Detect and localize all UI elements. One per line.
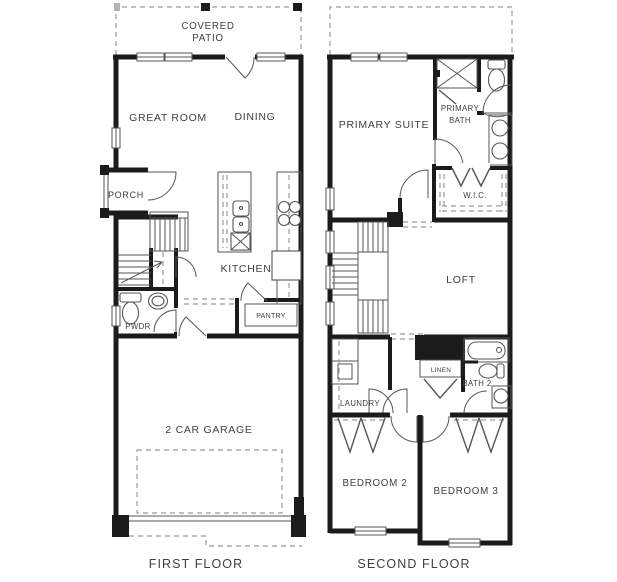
shower-door bbox=[439, 90, 456, 104]
covered-patio-label-line2: PATIO bbox=[192, 33, 223, 44]
bedroom-2: BEDROOM 2 bbox=[334, 418, 408, 489]
window bbox=[326, 188, 334, 210]
window bbox=[449, 539, 480, 547]
window bbox=[165, 53, 192, 61]
closet-door-chevron bbox=[338, 418, 361, 452]
bedroom3-label: BEDROOM 3 bbox=[433, 486, 498, 497]
window bbox=[351, 53, 378, 61]
closet-door-chevron bbox=[361, 418, 385, 452]
window bbox=[257, 53, 285, 61]
loft-label: LOFT bbox=[446, 274, 476, 286]
primary-suite-label: PRIMARY SUITE bbox=[339, 119, 429, 131]
shower-icon bbox=[435, 59, 477, 104]
washer-dryer-icon bbox=[332, 339, 358, 384]
bath2-label: BATH 2 bbox=[462, 379, 491, 388]
linen-closet: LINEN bbox=[415, 335, 463, 398]
powder-room: PWDR bbox=[120, 293, 181, 332]
stair-direction-arrow bbox=[121, 261, 162, 283]
pedestal-sink-icon bbox=[149, 293, 168, 309]
linen-label: LINEN bbox=[431, 367, 451, 374]
linen-door-chevron bbox=[424, 379, 457, 398]
porch-label: PORCH bbox=[108, 190, 144, 200]
stair-closet-door-arc bbox=[176, 257, 196, 277]
stairs-second-floor bbox=[332, 222, 388, 333]
dishwasher-icon bbox=[231, 233, 250, 250]
bathtub-icon bbox=[464, 338, 509, 362]
floor-plan-drawing: COVERED PATIO PORCH bbox=[0, 0, 617, 582]
first-floor-caption: FIRST FLOOR bbox=[149, 557, 244, 571]
primary-bath-door-arc bbox=[435, 139, 463, 167]
stairs-first-floor bbox=[118, 212, 196, 288]
roof-outline bbox=[330, 7, 512, 55]
garage: 2 CAR GARAGE bbox=[129, 424, 302, 546]
primary-suite: PRIMARY SUITE bbox=[330, 119, 432, 227]
window bbox=[112, 128, 120, 148]
dining-label: DINING bbox=[235, 111, 276, 123]
kitchen-sink-icon bbox=[233, 201, 249, 232]
hall-ceiling-break bbox=[184, 299, 234, 304]
bath-2: BATH 2 bbox=[462, 337, 511, 414]
patio-post bbox=[293, 3, 302, 11]
garage-entry bbox=[177, 317, 207, 341]
bedroom2-label: BEDROOM 2 bbox=[342, 478, 407, 489]
bedroom-3: BEDROOM 3 bbox=[433, 418, 506, 497]
pwdr-label: PWDR bbox=[125, 322, 150, 331]
second-floor-caption: SECOND FLOOR bbox=[357, 557, 470, 571]
garage-parking-outline bbox=[137, 450, 282, 513]
chase-fill bbox=[415, 335, 463, 360]
patio-post bbox=[114, 3, 120, 11]
toilet-icon bbox=[479, 364, 504, 378]
kitchen-counter bbox=[277, 172, 301, 304]
covered-patio: COVERED PATIO bbox=[114, 3, 302, 55]
garage-label: 2 CAR GARAGE bbox=[165, 424, 252, 436]
window bbox=[137, 53, 164, 61]
covered-patio-label-line1: COVERED bbox=[181, 21, 234, 32]
great-room-label: GREAT ROOM bbox=[129, 112, 207, 124]
wic-label: W.I.C. bbox=[463, 191, 487, 200]
pantry-label: PANTRY bbox=[256, 313, 286, 320]
garage-door-outline bbox=[129, 536, 302, 546]
window bbox=[326, 302, 334, 325]
kitchen: KITCHEN bbox=[218, 172, 301, 304]
bath2-door-arc bbox=[464, 391, 487, 414]
window bbox=[355, 527, 386, 535]
window bbox=[380, 53, 407, 61]
floor-plan-canvas: COVERED PATIO PORCH bbox=[0, 0, 617, 582]
kitchen-label: KITCHEN bbox=[221, 263, 272, 275]
laundry-door-arc bbox=[383, 389, 407, 413]
primary-bath: PRIMARY BATH bbox=[435, 55, 512, 167]
first-floor-plan: COVERED PATIO PORCH bbox=[100, 3, 306, 571]
window bbox=[326, 231, 334, 253]
primary-bath-label-line2: BATH bbox=[449, 116, 471, 125]
closet-door-chevron bbox=[479, 418, 503, 452]
window bbox=[112, 306, 120, 326]
porch-door-arc bbox=[148, 172, 176, 200]
laundry: LAUNDRY bbox=[332, 337, 410, 420]
primary-suite-door-arc bbox=[400, 170, 428, 198]
loft: LOFT bbox=[446, 274, 476, 286]
second-floor-plan: PRIMARY SUITE bbox=[326, 7, 514, 571]
laundry-label: LAUNDRY bbox=[340, 399, 380, 408]
primary-bath-label-line1: PRIMARY bbox=[441, 104, 480, 113]
bedroom3-door-arc bbox=[423, 416, 449, 442]
toilet-icon bbox=[120, 293, 141, 324]
porch: PORCH bbox=[100, 165, 176, 218]
walk-in-closet: W.I.C. bbox=[434, 163, 512, 222]
refrigerator-icon bbox=[272, 251, 301, 280]
patio-post bbox=[201, 3, 210, 11]
pantry-door-arc bbox=[241, 283, 267, 301]
closet-door-chevron bbox=[456, 418, 479, 452]
